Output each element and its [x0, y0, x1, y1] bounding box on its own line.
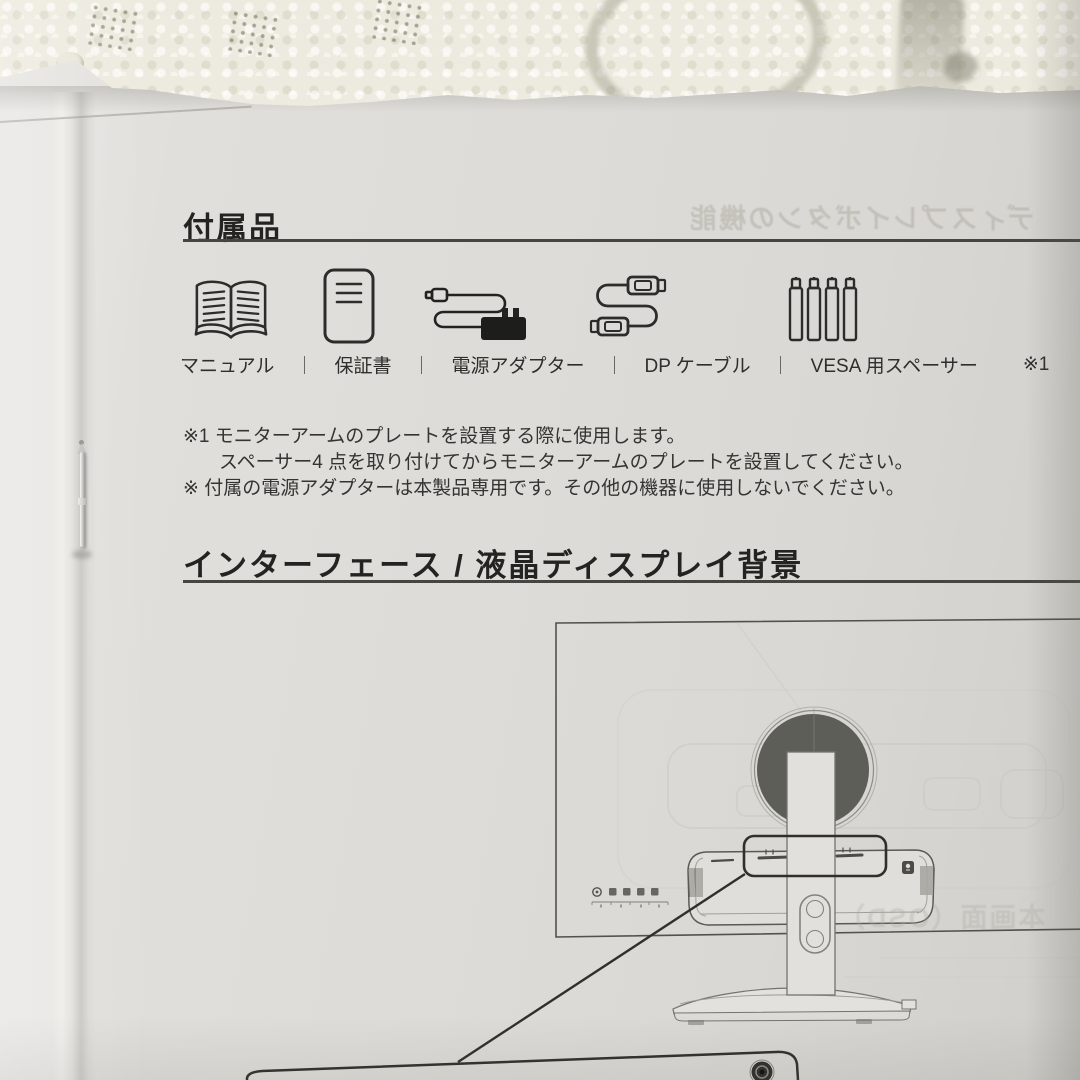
accessory-label: DP ケーブル — [644, 351, 750, 378]
label-separator: ｜ — [605, 352, 623, 378]
vesa-spacer-icon — [786, 277, 860, 345]
see-through-text-bottom: 本画面（OSD） — [836, 896, 1046, 935]
accessories-title-rule — [183, 239, 1080, 242]
interface-title-rule — [183, 580, 1080, 583]
footnote-marker: ※1 — [1023, 353, 1050, 376]
label-separator: ｜ — [412, 352, 430, 378]
staple — [72, 440, 94, 566]
manual-page-photo: { "page": { "accessories": { "title": "付… — [0, 0, 1080, 1080]
accessories-notes: ※1 モニターアームのプレートを設置する際に使用します。 スペーサー4 点を取り… — [183, 424, 1063, 502]
note-line: ※1 モニターアームのプレートを設置する際に使用します。 — [183, 424, 1063, 450]
accessory-label: 保証書 — [334, 351, 391, 378]
staple-foot — [73, 543, 90, 552]
label-separator: ｜ — [295, 352, 313, 378]
dp-cable-icon — [584, 271, 672, 349]
power-adapter-icon — [424, 281, 530, 343]
label-separator: ｜ — [772, 352, 790, 378]
accessory-label: 電源アダプター — [451, 351, 584, 378]
accessory-labels-row: マニュアル ｜ 保証書 ｜ 電源アダプター ｜ DP ケーブル ｜ VESA 用… — [180, 351, 1049, 378]
note-line: スペーサー4 点を取り付けてからモニターアームのプレートを設置してください。 — [183, 450, 1063, 476]
accessory-label: マニュアル — [180, 351, 274, 378]
note-line: ※ 付属の電源アダプターは本製品専用です。その他の機器に使用しないでください。 — [183, 476, 1063, 502]
foam-blotch — [944, 52, 978, 82]
book-icon — [192, 277, 270, 343]
accessory-label: VESA 用スペーサー — [811, 351, 978, 378]
staple-joint — [78, 498, 87, 505]
booklet-fold — [0, 92, 96, 1080]
see-through-text-top: ディスプレイボタンの機能 — [688, 197, 1034, 236]
foam-dot-cluster — [369, 0, 425, 46]
warranty-card-icon — [322, 267, 376, 345]
foam-dot-cluster — [85, 2, 141, 51]
foam-dot-cluster — [225, 8, 281, 57]
interface-title: インターフェース / 液晶ディスプレイ背景 — [183, 540, 803, 585]
